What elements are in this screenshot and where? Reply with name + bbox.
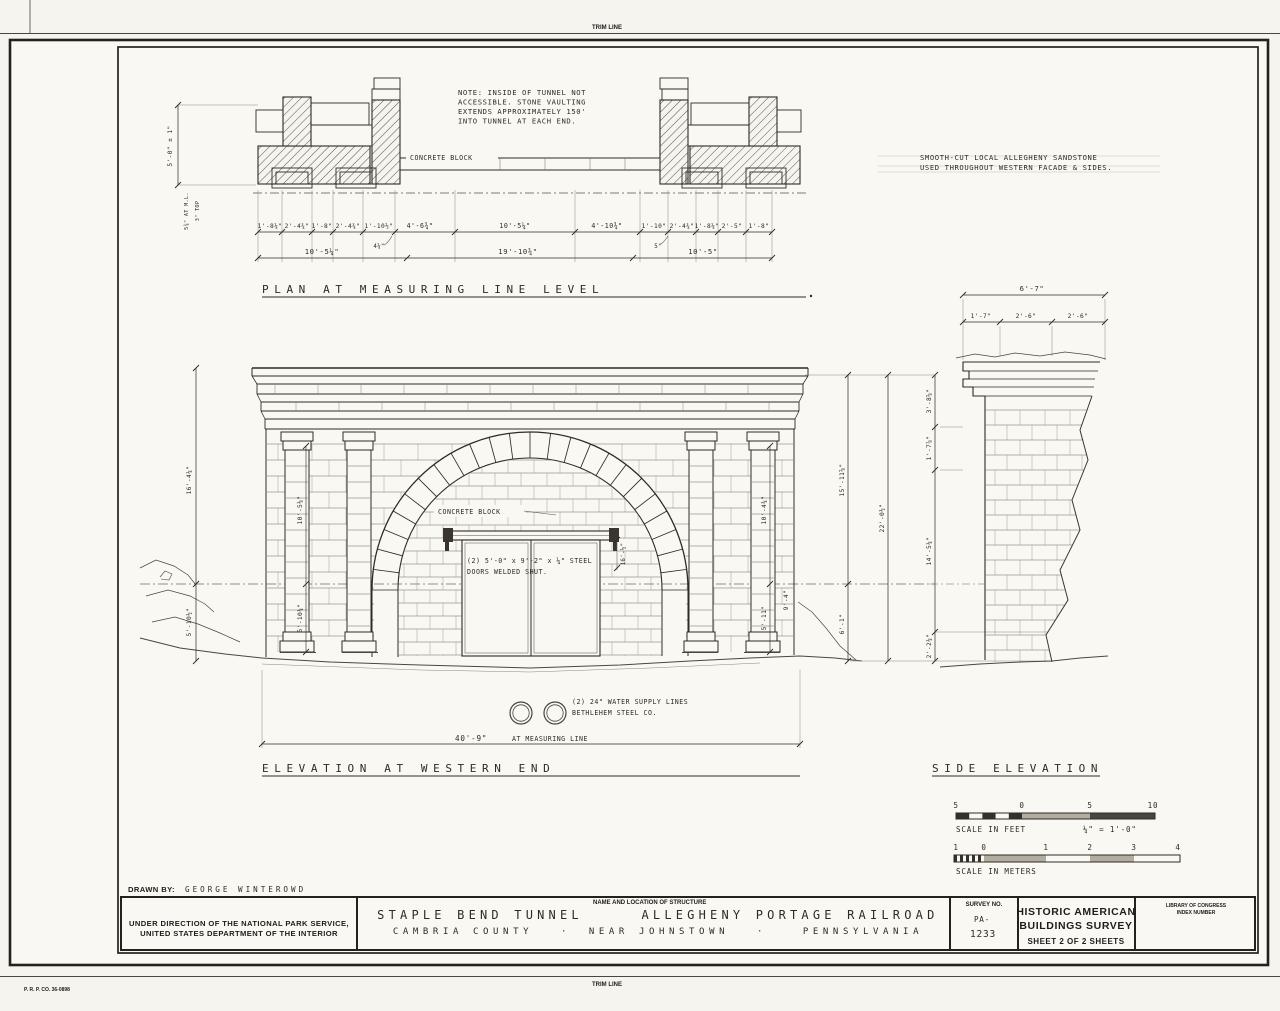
printer-code: P. R. P. CO. 36-0898 (24, 987, 70, 993)
dim-label: 6'-7" (1020, 284, 1045, 293)
dim-label: 16'-½" (620, 543, 627, 566)
dim-label: 2'-6" (1068, 313, 1089, 320)
dim-label: 5'-0" ± 1" (167, 125, 174, 166)
drawn-by-label: DRAWN BY: (128, 885, 175, 894)
side-title-group: SIDE ELEVATION (932, 762, 1103, 776)
dim-label: 3" TOP (195, 201, 201, 222)
habs-title: BUILDINGS SURVEY (1019, 920, 1132, 932)
survey-number: 1233 (970, 929, 996, 940)
section-title-plan: PLAN AT MEASURING LINE LEVEL (262, 283, 604, 296)
scale-bar-feet (956, 813, 1155, 819)
scale-tick-label: 0 (981, 843, 986, 852)
agency-line: UNDER DIRECTION OF THE NATIONAL PARK SER… (129, 919, 349, 928)
dim-label: 1'-10½" (365, 222, 394, 230)
dim-label: 1'-8¼" (258, 222, 283, 230)
water-note-line: (2) 24" WATER SUPPLY LINES (572, 698, 688, 706)
tunnel-doors (443, 528, 619, 656)
dim-label: 5'-10½" (185, 608, 193, 637)
note-line: ACCESSIBLE. STONE VAULTING (458, 98, 586, 107)
door-note-line: (2) 5'-0" x 9'-2" x ¼" STEEL (467, 557, 592, 565)
drawing-sheet: DUE TO INSUFFICIENT INFORMATION AT THE T… (0, 0, 1280, 1011)
drawing-canvas: TRIM LINE TRIM LINE P. R. P. CO. 36-0898… (0, 0, 1280, 1011)
dim-label: 1'-10" (642, 223, 667, 230)
dim-label: 1'-8" (749, 223, 770, 230)
loc-index-label: INDEX NUMBER (1177, 910, 1216, 916)
scale-tick-label: 5 (1087, 801, 1092, 810)
door-note-line: DOORS WELDED SHUT. (467, 568, 547, 576)
dim-label: 4'-6¾" (407, 222, 434, 230)
dim-label: 5¾" AT M.L. (184, 192, 190, 230)
section-title-elevation: ELEVATION AT WESTERN END (262, 762, 555, 775)
loc-index-label: LIBRARY OF CONGRESS (1166, 903, 1227, 909)
scale-bar-meters (954, 855, 1134, 862)
note-line: NOTE: INSIDE OF TUNNEL NOT (458, 88, 586, 97)
note-line: SMOOTH-CUT LOCAL ALLEGHENY SANDSTONE (920, 153, 1097, 162)
drawn-by-name: GEORGE WINTEROWD (185, 885, 306, 894)
scale-tick-label: 2 (1087, 843, 1092, 852)
dim-label: 15'-11⅝" (838, 463, 846, 496)
scale-caption: SCALE IN FEET (956, 825, 1026, 834)
note-line: USED THROUGHOUT WESTERN FACADE & SIDES. (920, 163, 1112, 172)
sheet-info: SHEET 2 OF 2 SHEETS (1027, 937, 1124, 946)
note-line: EXTENDS APPROXIMATELY 150' (458, 107, 586, 116)
dim-label: 6'-1" (839, 614, 846, 635)
scale-tick-label: 3 (1131, 843, 1136, 852)
note-line: INTO TUNNEL AT EACH END. (458, 117, 576, 126)
plan-concrete-block-label: CONCRETE BLOCK (410, 154, 473, 162)
water-note-line: BETHLEHEM STEEL CO. (572, 709, 657, 717)
dim-label: 9'-4" (783, 590, 790, 611)
structure-name: ALLEGHENY PORTAGE RAILROAD (641, 908, 938, 922)
dim-label: 2'-6" (1016, 313, 1037, 320)
location-separator: · (757, 927, 767, 937)
dim-label: 10'-4¾" (760, 496, 768, 525)
dim-label: 10'-5¼" (499, 222, 530, 230)
elevation-concrete-block-label: CONCRETE BLOCK (438, 508, 501, 516)
plan-note: NOTE: INSIDE OF TUNNEL NOT ACCESSIBLE. S… (458, 88, 586, 126)
agency-line: UNITED STATES DEPARTMENT OF THE INTERIOR (140, 929, 338, 938)
dim-label: 4'-10¾" (591, 222, 622, 230)
scale-caption: SCALE IN METERS (956, 867, 1037, 876)
structure-location: NEAR JOHNSTOWN (589, 927, 729, 937)
dim-label: 19'-10¾" (498, 247, 537, 256)
scale-tick-label: 0 (1019, 801, 1024, 810)
dim-label: 3'-8⅝" (925, 389, 933, 414)
section-title-side: SIDE ELEVATION (932, 762, 1103, 775)
scale-tick-label: 1 (953, 843, 958, 852)
dim-label: 2'-4¾" (336, 222, 361, 230)
location-separator: · (561, 927, 571, 937)
structure-header: NAME AND LOCATION OF STRUCTURE (593, 900, 706, 906)
dim-label: 10'-5" (688, 247, 718, 256)
dim-label: 1'-7⅞" (925, 436, 933, 461)
scale-tick-label: 10 (1148, 801, 1159, 810)
dim-label: 14'-5¼" (925, 537, 933, 566)
dim-label: 10'-5¼" (305, 247, 340, 256)
survey-number: PA- (974, 915, 990, 924)
dim-label: 2'-4¾" (285, 222, 310, 230)
dim-label: 5'-11" (761, 606, 768, 631)
structure-name: STAPLE BEND TUNNEL (377, 908, 583, 922)
survey-number-label: SURVEY NO. (966, 902, 1003, 908)
dim-label: 1'-7" (971, 313, 992, 320)
dim-label: 22'-0½" (878, 504, 886, 533)
habs-title: HISTORIC AMERICAN (1016, 906, 1135, 918)
dim-label: 40'-9" (455, 734, 487, 743)
dim-label: 10'-5⅛" (295, 496, 304, 525)
scale-tick-label: 4 (1175, 843, 1180, 852)
trim-line-label-bottom: TRIM LINE (592, 982, 622, 988)
trim-line-label-top: TRIM LINE (592, 25, 622, 31)
dim-label: 16'-4¼" (185, 466, 193, 495)
dim-label: 5'-10¼" (296, 604, 304, 633)
scale-tick-label: 5 (953, 801, 958, 810)
scale-tick-label: 1 (1043, 843, 1048, 852)
structure-location: CAMBRIA COUNTY (393, 927, 533, 937)
dim-label: 2'-4¾" (670, 222, 695, 230)
dim-label: 2'-5" (722, 223, 743, 230)
scale-ratio: ¼" = 1'-0" (1083, 825, 1137, 834)
dim-label: AT MEASURING LINE (512, 735, 588, 743)
dim-label: 4¼" (373, 244, 384, 250)
structure-location: PENNSYLVANIA (803, 927, 923, 937)
dim-label: 1'-8¼" (695, 222, 720, 230)
dim-label: 2'-2¼" (925, 634, 933, 659)
dim-label: 5" (654, 244, 662, 250)
